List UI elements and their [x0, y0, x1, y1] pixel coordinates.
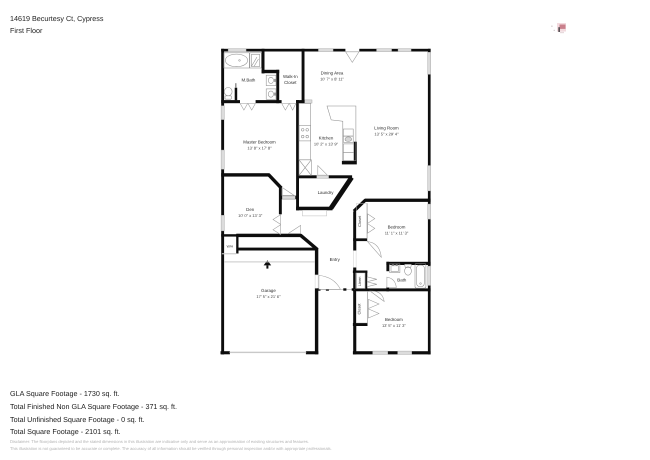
svg-text:13' 8" x 17' 8": 13' 8" x 17' 8": [247, 146, 272, 151]
svg-text:11' 1" x 11' 3": 11' 1" x 11' 3": [385, 230, 409, 235]
svg-text:M.Bath: M.Bath: [241, 78, 255, 83]
svg-text:Closet: Closet: [356, 303, 361, 315]
svg-text:10' 0" x 13' 3": 10' 0" x 13' 3": [238, 213, 263, 218]
svg-text:Linen: Linen: [357, 277, 362, 287]
svg-text:W/H: W/H: [227, 245, 234, 249]
svg-text:Closet: Closet: [357, 215, 362, 227]
svg-text:Entry: Entry: [330, 257, 341, 262]
svg-text:Bath: Bath: [397, 278, 407, 283]
svg-text:Walk-In: Walk-In: [283, 74, 298, 79]
svg-text:10' 7" x 8' 11": 10' 7" x 8' 11": [320, 77, 344, 82]
svg-text:Garage: Garage: [261, 288, 276, 293]
svg-text:Den: Den: [246, 207, 255, 212]
svg-text:Dining Area: Dining Area: [321, 71, 344, 76]
svg-text:Living Room: Living Room: [374, 126, 399, 131]
svg-text:Closet: Closet: [284, 80, 297, 85]
svg-text:Kitchen: Kitchen: [319, 136, 334, 141]
svg-text:Bedroom: Bedroom: [388, 224, 406, 229]
svg-text:Laundry: Laundry: [318, 190, 335, 195]
svg-text:13' 5" x 11' 3": 13' 5" x 11' 3": [382, 323, 406, 328]
svg-text:Bedroom: Bedroom: [385, 317, 403, 322]
svg-text:10' 2" x 13' 9": 10' 2" x 13' 9": [314, 142, 339, 147]
svg-text:13' 5" x 29' 4": 13' 5" x 29' 4": [374, 132, 399, 137]
svg-text:Master Bedroom: Master Bedroom: [243, 140, 276, 145]
svg-text:17' 5" x 21' 6": 17' 5" x 21' 6": [256, 294, 281, 299]
